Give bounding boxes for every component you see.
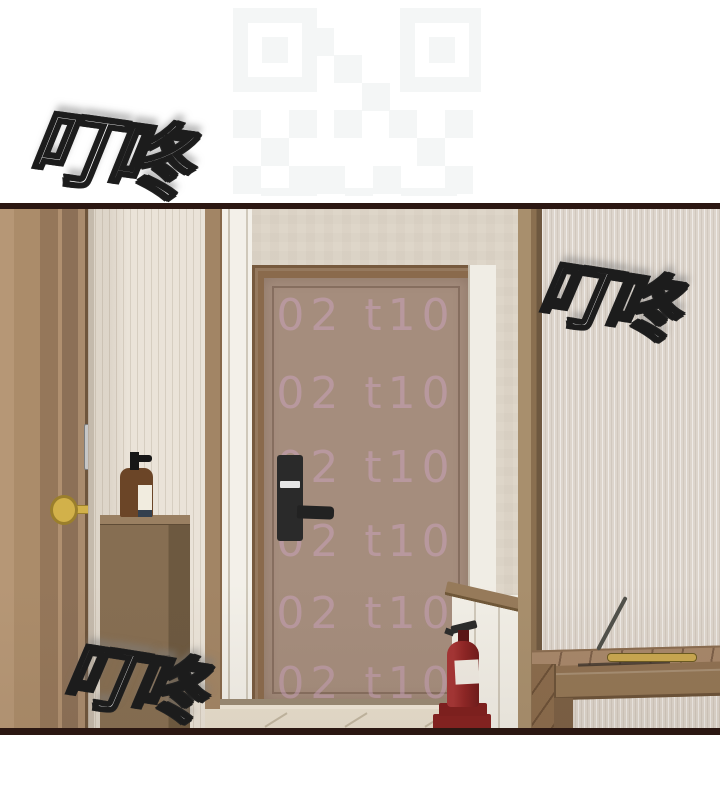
sfx-ding-dong: 叮咚 <box>530 257 693 347</box>
open-wooden-door <box>0 209 88 728</box>
wall-corner-trim <box>205 209 222 728</box>
bench-leg <box>554 698 573 728</box>
watermark-text: 02 t10 <box>264 588 468 639</box>
wooden-bench-apron <box>552 669 720 700</box>
door-jamb-strips <box>222 209 252 728</box>
soap-bottle-label <box>138 485 152 510</box>
watermark-text: 02 t10 <box>264 658 468 702</box>
bench-leg <box>532 664 556 728</box>
small-dark-item <box>138 510 152 517</box>
qr-watermark-icon <box>233 0 481 196</box>
digital-door-lock <box>277 455 303 541</box>
watermark-text: 02 t10 <box>264 290 468 341</box>
door-handle <box>297 505 334 519</box>
sfx-ding-dong: 叮咚 <box>21 107 207 207</box>
soap-pump-stem <box>130 452 139 470</box>
sfx-ding-dong: 叮咚 <box>56 639 219 729</box>
lock-keypad-slot <box>280 481 300 488</box>
extinguisher-label <box>454 659 479 684</box>
shoehorn-tray <box>607 653 697 662</box>
comic-page: 02 t10 02 t10 02 t10 02 t10 02 t10 02 t1… <box>0 0 720 800</box>
gold-key-icon <box>50 495 78 525</box>
watermark-text: 02 t10 <box>264 368 468 419</box>
extinguisher-stand <box>433 714 491 730</box>
